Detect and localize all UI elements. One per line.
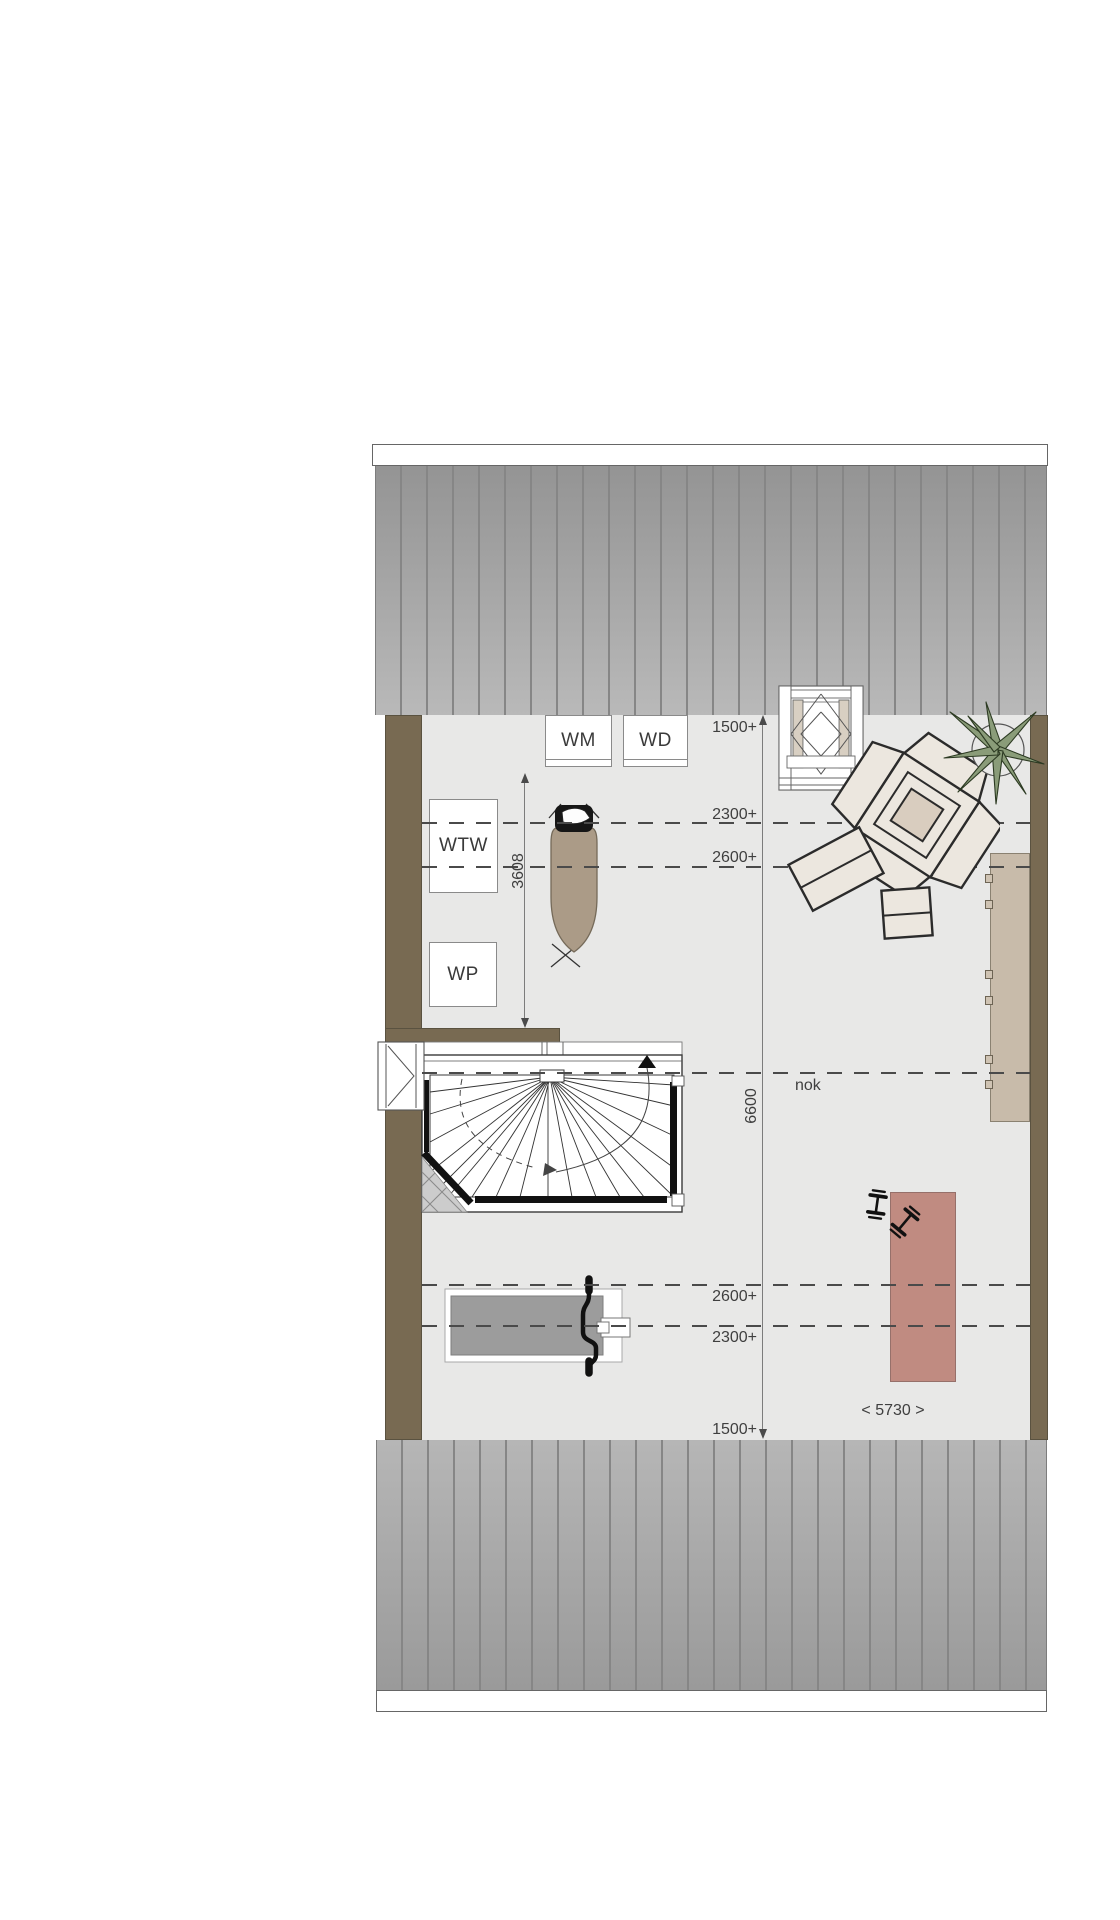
dumbbell bbox=[867, 1190, 887, 1219]
washing-machine-label: WM bbox=[561, 730, 596, 752]
ridge-cap-strip-top bbox=[372, 444, 1048, 466]
dryer-box: WD bbox=[623, 715, 688, 767]
dimension-arrow-up bbox=[521, 773, 529, 783]
width-label-5730: < 5730 > bbox=[848, 1402, 938, 1420]
height-label-1500-top: 1500+ bbox=[687, 719, 757, 737]
dimension-label-3608: 3608 bbox=[510, 841, 528, 901]
floor-plan-page: WM WD WTW WP bbox=[0, 0, 1120, 1920]
dimension-arrow-down bbox=[521, 1018, 529, 1028]
height-line-2600-bottom bbox=[422, 1284, 1030, 1286]
height-label-2300-bottom: 2300+ bbox=[687, 1329, 757, 1347]
dumbbells bbox=[855, 1183, 960, 1253]
ridge-label-nok: nok bbox=[795, 1077, 821, 1095]
side-table bbox=[881, 887, 932, 938]
washing-machine-box: WM bbox=[545, 715, 612, 767]
height-label-2600-bottom: 2600+ bbox=[687, 1288, 757, 1306]
sideboard-knob bbox=[985, 1080, 993, 1089]
dryer-label: WD bbox=[639, 730, 672, 752]
eave-cap-strip-bottom bbox=[376, 1690, 1047, 1712]
dimension-arrow-down bbox=[759, 1429, 767, 1439]
heat-recovery-unit-label: WTW bbox=[439, 835, 488, 857]
roof-plane-top bbox=[375, 466, 1047, 715]
height-label-1500-bottom: 1500+ bbox=[687, 1421, 757, 1439]
height-label-2300-top: 2300+ bbox=[687, 806, 757, 824]
winder-staircase bbox=[374, 1035, 694, 1220]
roof-plane-bottom bbox=[376, 1440, 1047, 1690]
sideboard-knob bbox=[985, 1055, 993, 1064]
dimension-line-6600 bbox=[762, 722, 763, 1436]
height-line-2300-bottom bbox=[422, 1325, 1030, 1327]
dimension-arrow-up bbox=[759, 715, 767, 725]
height-label-2600-top: 2600+ bbox=[687, 849, 757, 867]
stair-window bbox=[378, 1042, 424, 1110]
heat-recovery-unit-box: WTW bbox=[429, 799, 498, 893]
ridge-line-nok bbox=[422, 1072, 1030, 1074]
dimension-line-3608 bbox=[524, 779, 525, 1025]
dimension-label-6600: 6600 bbox=[743, 1076, 761, 1136]
heat-pump-label: WP bbox=[447, 964, 479, 986]
potted-plant bbox=[940, 698, 1050, 808]
sideboard-knob bbox=[985, 996, 993, 1005]
wall-right bbox=[1030, 715, 1048, 1440]
heat-pump-box: WP bbox=[429, 942, 497, 1007]
dumbbell bbox=[889, 1205, 921, 1238]
sideboard-knob bbox=[985, 970, 993, 979]
